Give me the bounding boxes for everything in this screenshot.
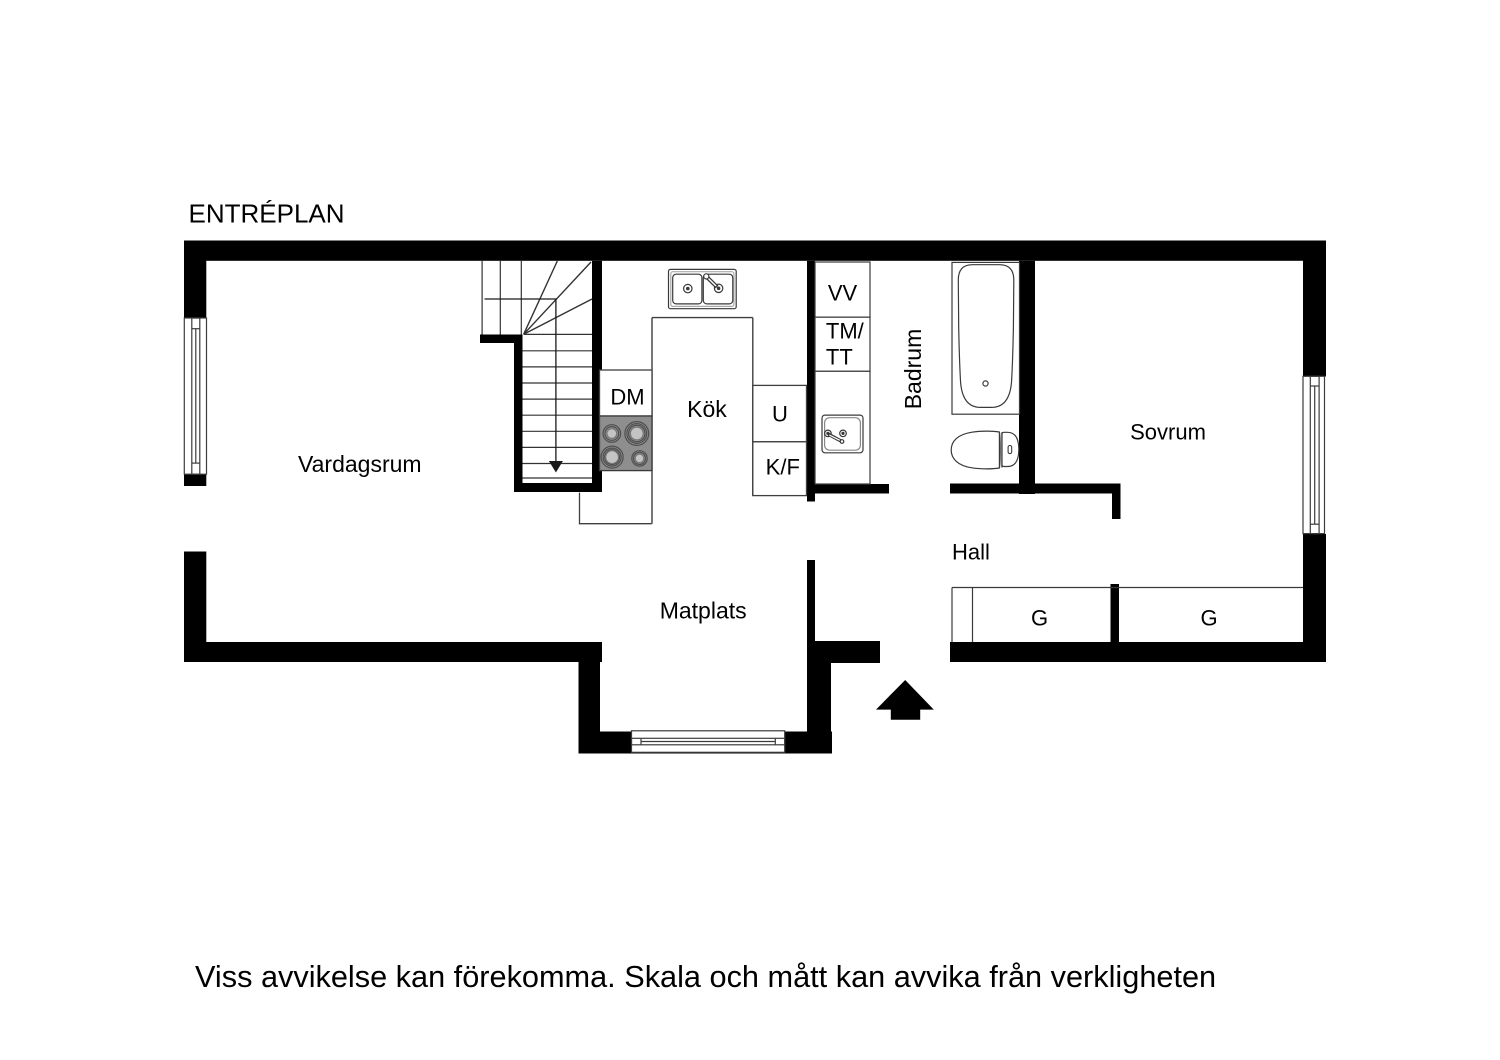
svg-text:K/F: K/F: [766, 455, 800, 480]
svg-text:G: G: [1200, 606, 1217, 631]
svg-text:DM: DM: [610, 385, 644, 410]
svg-text:G: G: [1031, 606, 1048, 631]
svg-text:VV: VV: [828, 281, 858, 306]
svg-text:TT: TT: [826, 345, 853, 370]
svg-text:Matplats: Matplats: [660, 598, 747, 624]
svg-text:Viss avvikelse kan förekomma.: Viss avvikelse kan förekomma. Skala och …: [195, 959, 1216, 994]
svg-text:Hall: Hall: [952, 540, 990, 565]
svg-text:Sovrum: Sovrum: [1130, 420, 1206, 445]
svg-text:Kök: Kök: [687, 396, 727, 422]
svg-text:Badrum: Badrum: [900, 329, 926, 410]
svg-text:TM/: TM/: [826, 318, 865, 343]
svg-text:Vardagsrum: Vardagsrum: [298, 451, 422, 477]
svg-text:ENTRÉPLAN: ENTRÉPLAN: [189, 199, 345, 229]
svg-text:U: U: [772, 402, 788, 427]
